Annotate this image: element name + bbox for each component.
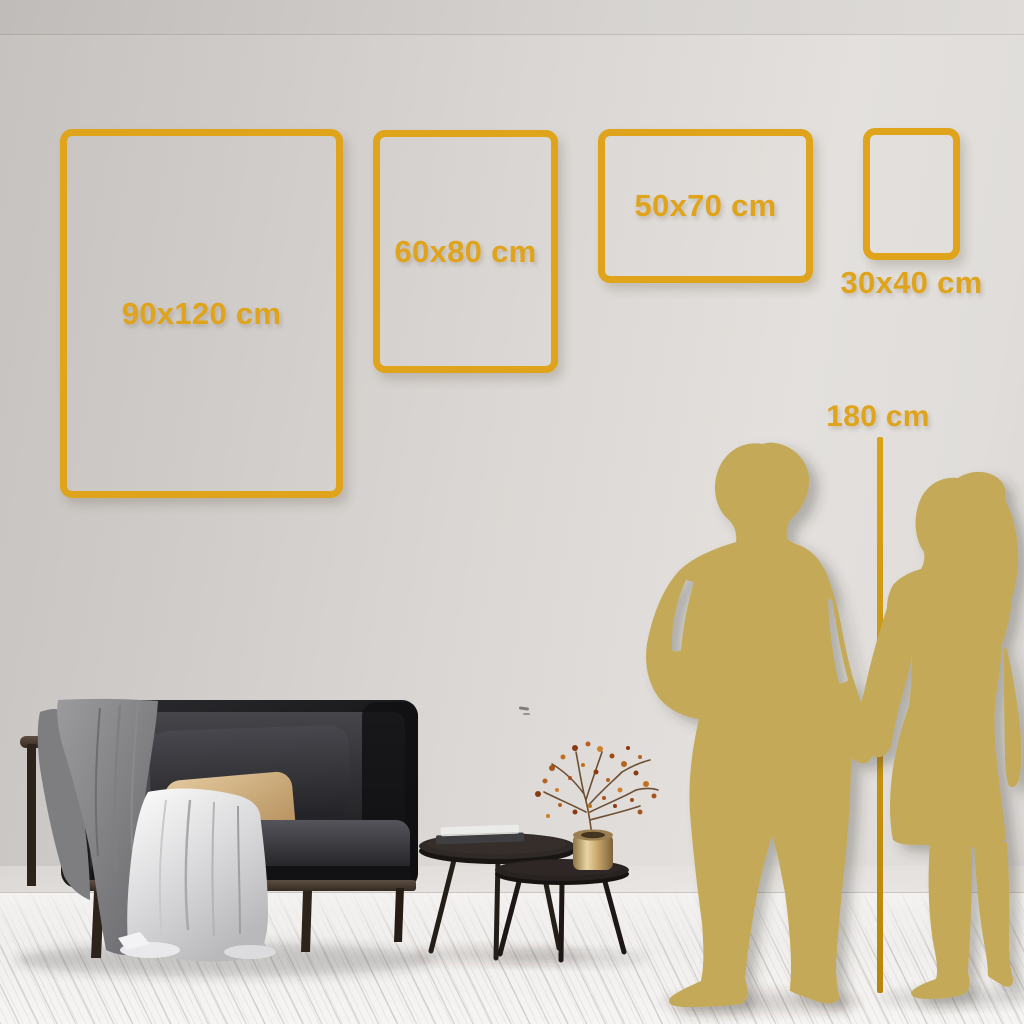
frame-label-30x40: 30x40 cm (840, 265, 982, 301)
size-guide-scene: 90x120 cm 60x80 cm 50x70 cm 30x40 cm 180… (0, 0, 1024, 1024)
height-reference-label: 180 cm (816, 400, 940, 434)
height-reference-line (877, 437, 883, 993)
frame-outline-30x40: 30x40 cm (863, 128, 960, 260)
frame-label-50x70: 50x70 cm (634, 188, 776, 224)
wall-marks (519, 706, 530, 715)
gray-cushion-right (148, 725, 351, 824)
beige-pillow (163, 771, 296, 848)
stacked-books (436, 824, 525, 844)
frame-outline-50x70: 50x70 cm (598, 129, 813, 283)
brass-vase (573, 834, 613, 870)
wood-floor (0, 892, 1024, 1024)
baseboard (0, 866, 1024, 892)
berries (535, 742, 657, 819)
dried-branch (544, 752, 658, 836)
ceiling-edge (0, 0, 1024, 35)
frame-label-90x120: 90x120 cm (122, 296, 282, 332)
brass-vase-with-branch (535, 742, 658, 871)
gray-cushion-left (109, 733, 232, 817)
frame-outline-90x120: 90x120 cm (60, 129, 343, 498)
frame-label-60x80: 60x80 cm (394, 234, 536, 270)
table-a-top (419, 833, 575, 859)
sofa-arm-bar (20, 736, 124, 748)
frame-outline-60x80: 60x80 cm (373, 130, 558, 373)
